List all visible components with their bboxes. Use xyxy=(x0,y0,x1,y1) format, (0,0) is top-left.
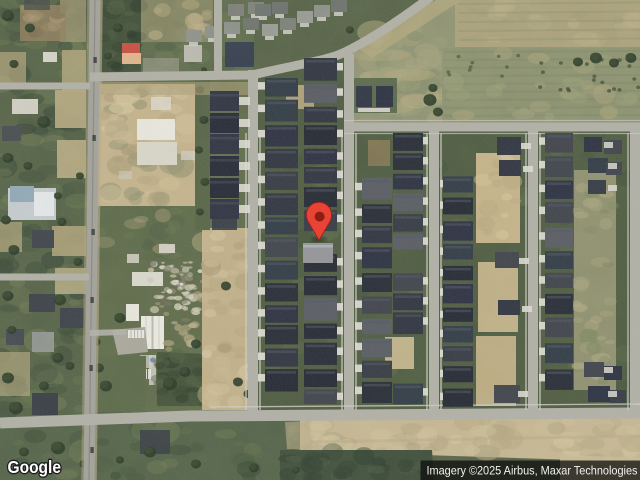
svg-text:Google: Google xyxy=(8,457,62,477)
svg-text:Imagery ©2025 Airbus, Maxar Te: Imagery ©2025 Airbus, Maxar Technologies xyxy=(427,464,638,478)
